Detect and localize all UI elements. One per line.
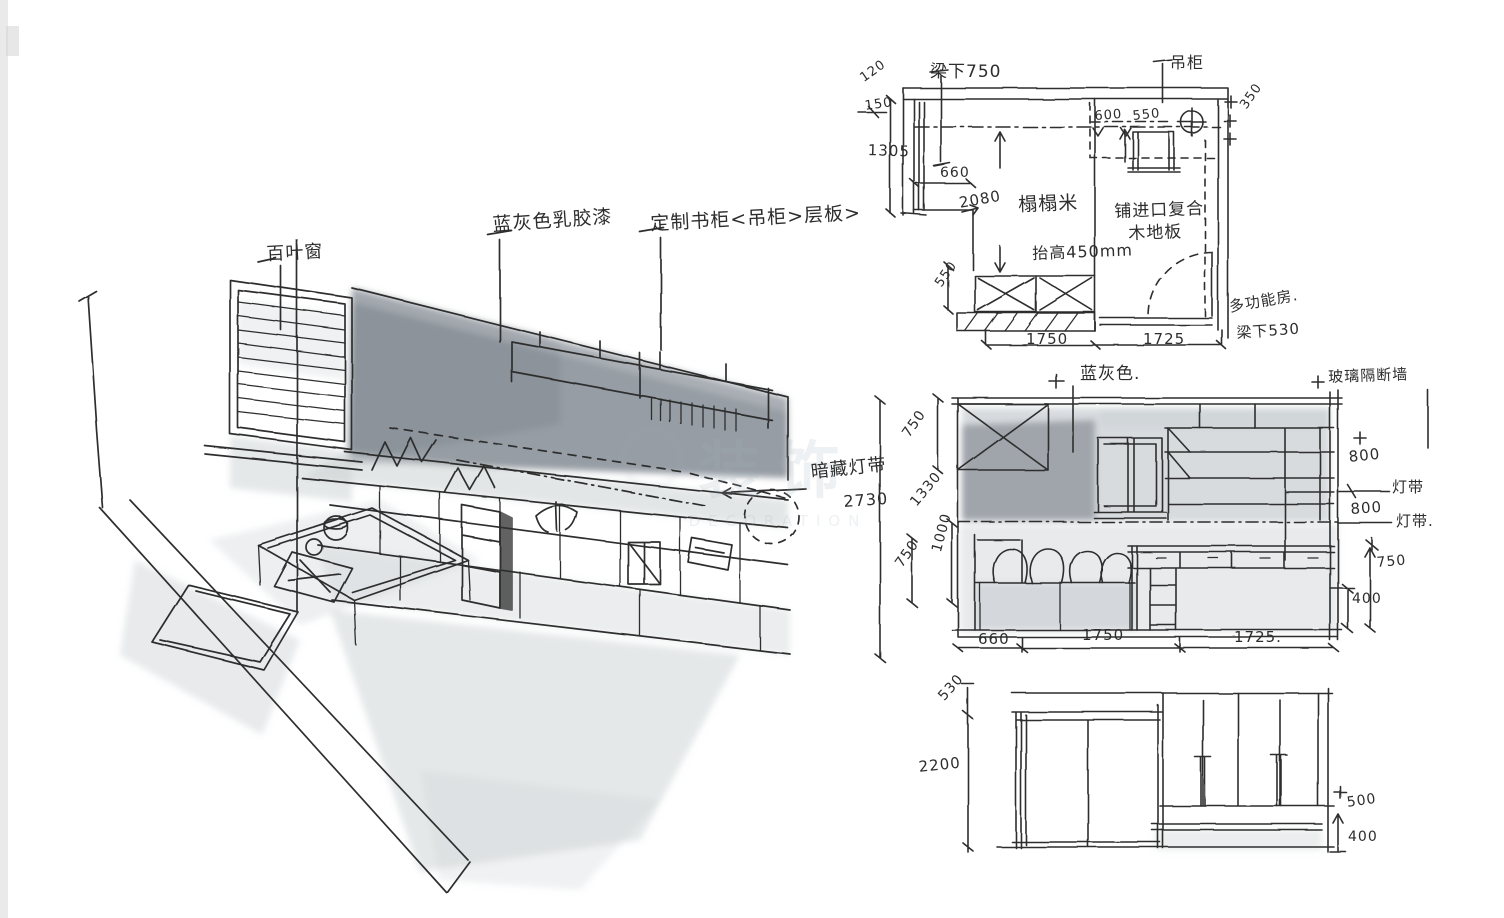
elev-dim-800-a: 800 (1348, 447, 1381, 466)
plan-label-floor-1: 铺进口复合 (1114, 201, 1205, 222)
elev-label-paint: 蓝灰色. (1080, 366, 1140, 384)
plan-label-floor-2: 木地板 (1128, 224, 1183, 244)
plan-label-beam: 梁下750 (930, 64, 1001, 82)
elev-dim-750-r: 750 (1376, 553, 1407, 570)
label-louver-window: 百叶窗 (266, 243, 324, 265)
plan-label-hanging-cabinet: 吊柜 (1170, 55, 1204, 72)
elev-dim-800-b: 800 (1350, 500, 1383, 518)
elev-dim-2730: 2730 (843, 491, 889, 511)
sketch-canvas (0, 0, 1504, 918)
plan-label-tatami: 榻榻米 (1018, 194, 1079, 216)
elev-dim-1750: 1750 (1082, 628, 1124, 644)
plan-dim-1305: 1305 (867, 143, 910, 160)
elev-label-glass: 玻璃隔断墙 (1328, 367, 1409, 386)
sketch-page: 装饰 DECORATION 百叶窗 蓝灰色乳胶漆 定制书柜<吊柜>层板> 暗藏灯… (0, 0, 1504, 918)
elev-label-strip-b: 灯带. (1396, 514, 1434, 530)
elev-dim-660: 660 (978, 632, 1010, 648)
plan-dim-550-cab: 550 (1132, 107, 1161, 123)
plan-label-raised: 抬高450mm (1032, 242, 1133, 262)
elevation-side (962, 684, 1346, 852)
side-dim-400: 400 (1348, 830, 1378, 845)
plan-dim-1750: 1750 (1026, 332, 1068, 348)
elev-dim-1725: 1725. (1234, 630, 1282, 646)
plan-dim-1725: 1725 (1143, 332, 1185, 348)
elev-label-strip-a: 灯带 (1392, 480, 1424, 496)
plan-dim-600: 600 (1094, 108, 1123, 124)
plan-dim-660: 660 (940, 166, 970, 181)
elev-dim-400-r: 400 (1352, 592, 1382, 607)
